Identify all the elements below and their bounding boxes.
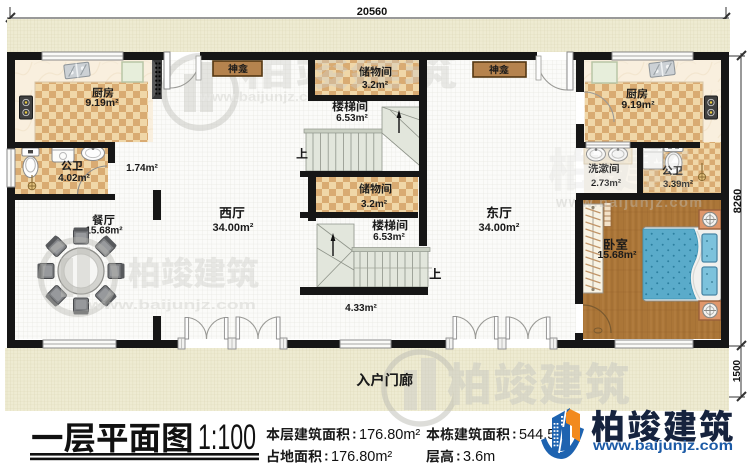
svg-text::: :	[324, 448, 329, 464]
svg-text:34.00m²: 34.00m²	[479, 222, 520, 234]
svg-text:1.74m²: 1.74m²	[126, 163, 158, 174]
svg-text:8260: 8260	[732, 189, 744, 213]
svg-text::: :	[352, 426, 357, 442]
svg-text:3.2m²: 3.2m²	[361, 199, 388, 210]
svg-text:1:100: 1:100	[198, 418, 256, 457]
svg-text:www.baijunjz.com: www.baijunjz.com	[592, 438, 733, 453]
svg-text::: :	[512, 426, 517, 442]
svg-text:4.02m²: 4.02m²	[58, 173, 90, 184]
svg-text:34.00m²: 34.00m²	[213, 222, 254, 234]
svg-text:3.2m²: 3.2m²	[362, 80, 389, 91]
svg-text:176.80m²: 176.80m²	[359, 427, 420, 443]
svg-text:20560: 20560	[357, 6, 388, 18]
svg-text:1500: 1500	[732, 359, 743, 382]
svg-text:9.19m²: 9.19m²	[85, 97, 119, 109]
svg-text:15.68m²: 15.68m²	[85, 226, 123, 237]
svg-text:6.53m²: 6.53m²	[336, 113, 368, 124]
svg-text:6.53m²: 6.53m²	[373, 232, 405, 243]
svg-text:15.68m²: 15.68m²	[597, 249, 637, 261]
svg-text:544.5: 544.5	[519, 427, 555, 443]
svg-text:www.baijunjz.com: www.baijunjz.com	[86, 298, 256, 312]
svg-text:176.80m²: 176.80m²	[331, 449, 392, 465]
svg-text:3.6m: 3.6m	[463, 449, 495, 465]
svg-text:4.33m²: 4.33m²	[345, 303, 377, 314]
svg-text::: :	[456, 448, 461, 464]
svg-text:9.19m²: 9.19m²	[621, 99, 655, 111]
